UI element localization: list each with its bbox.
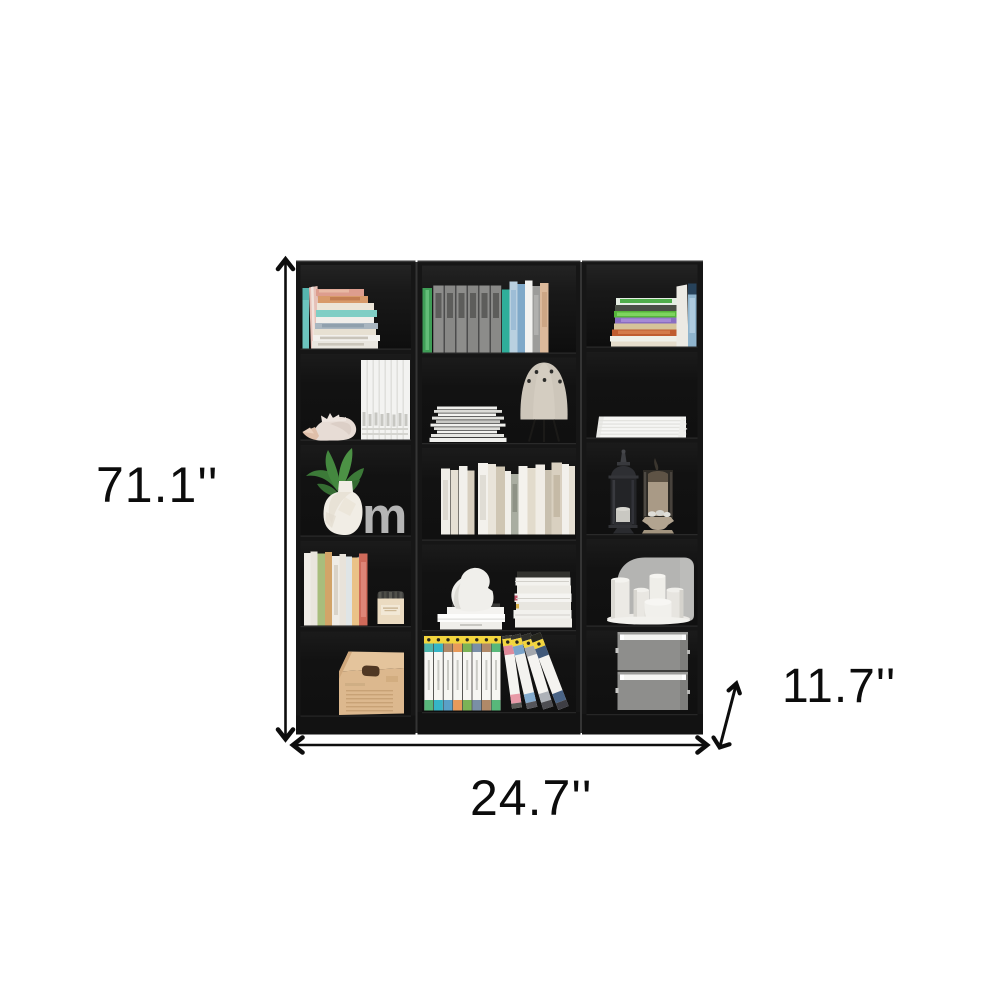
svg-text:m: m: [362, 487, 407, 544]
svg-text:11.7'': 11.7'': [782, 660, 896, 713]
svg-text:24.7'': 24.7'': [470, 770, 592, 826]
svg-text:71.1'': 71.1'': [96, 457, 218, 513]
